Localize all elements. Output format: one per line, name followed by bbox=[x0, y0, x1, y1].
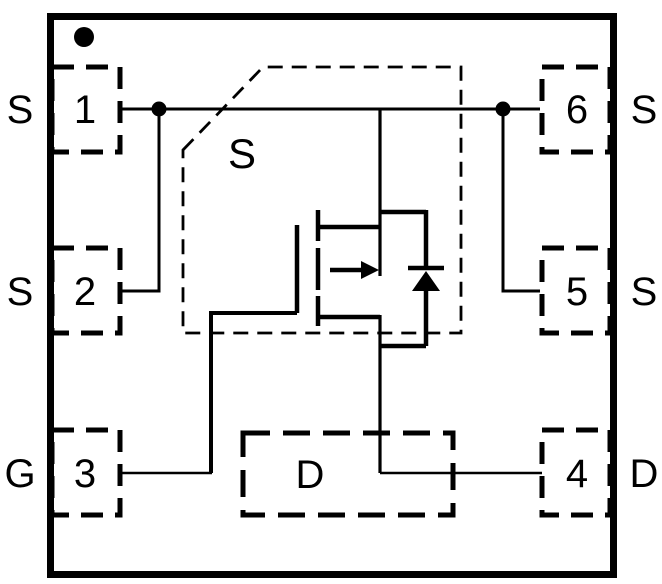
mosfet-body-arrow bbox=[361, 261, 379, 279]
pin-5-wire bbox=[503, 109, 540, 291]
gate-wire bbox=[211, 313, 297, 473]
pin-2-wire bbox=[120, 109, 159, 291]
pin-5-number: 5 bbox=[566, 270, 588, 314]
pinout-figure: 1 2 3 6 5 4 S S G S S D S D bbox=[0, 0, 662, 584]
pin-5-function-label: S bbox=[631, 270, 658, 314]
pin-6-function-label: S bbox=[631, 88, 658, 132]
center-pad-label: D bbox=[296, 453, 325, 497]
pin-4-number: 4 bbox=[566, 452, 588, 496]
body-diode-anode-triangle bbox=[412, 271, 440, 291]
package-outline bbox=[51, 17, 614, 575]
pin-4-function-label: D bbox=[630, 452, 659, 496]
pin-3-function-label: G bbox=[4, 452, 35, 496]
pinout-diagram: 1 2 3 6 5 4 S S G S S D S D bbox=[0, 0, 662, 584]
pin-1-number: 1 bbox=[74, 88, 96, 132]
pin-3-number: 3 bbox=[74, 452, 96, 496]
pin-2-number: 2 bbox=[74, 270, 96, 314]
die-outline bbox=[183, 67, 461, 333]
pin-1-function-label: S bbox=[7, 88, 34, 132]
pin-6-number: 6 bbox=[566, 88, 588, 132]
die-outline-label: S bbox=[228, 130, 256, 177]
pin1-indicator-dot bbox=[74, 27, 94, 47]
pin-2-function-label: S bbox=[7, 270, 34, 314]
